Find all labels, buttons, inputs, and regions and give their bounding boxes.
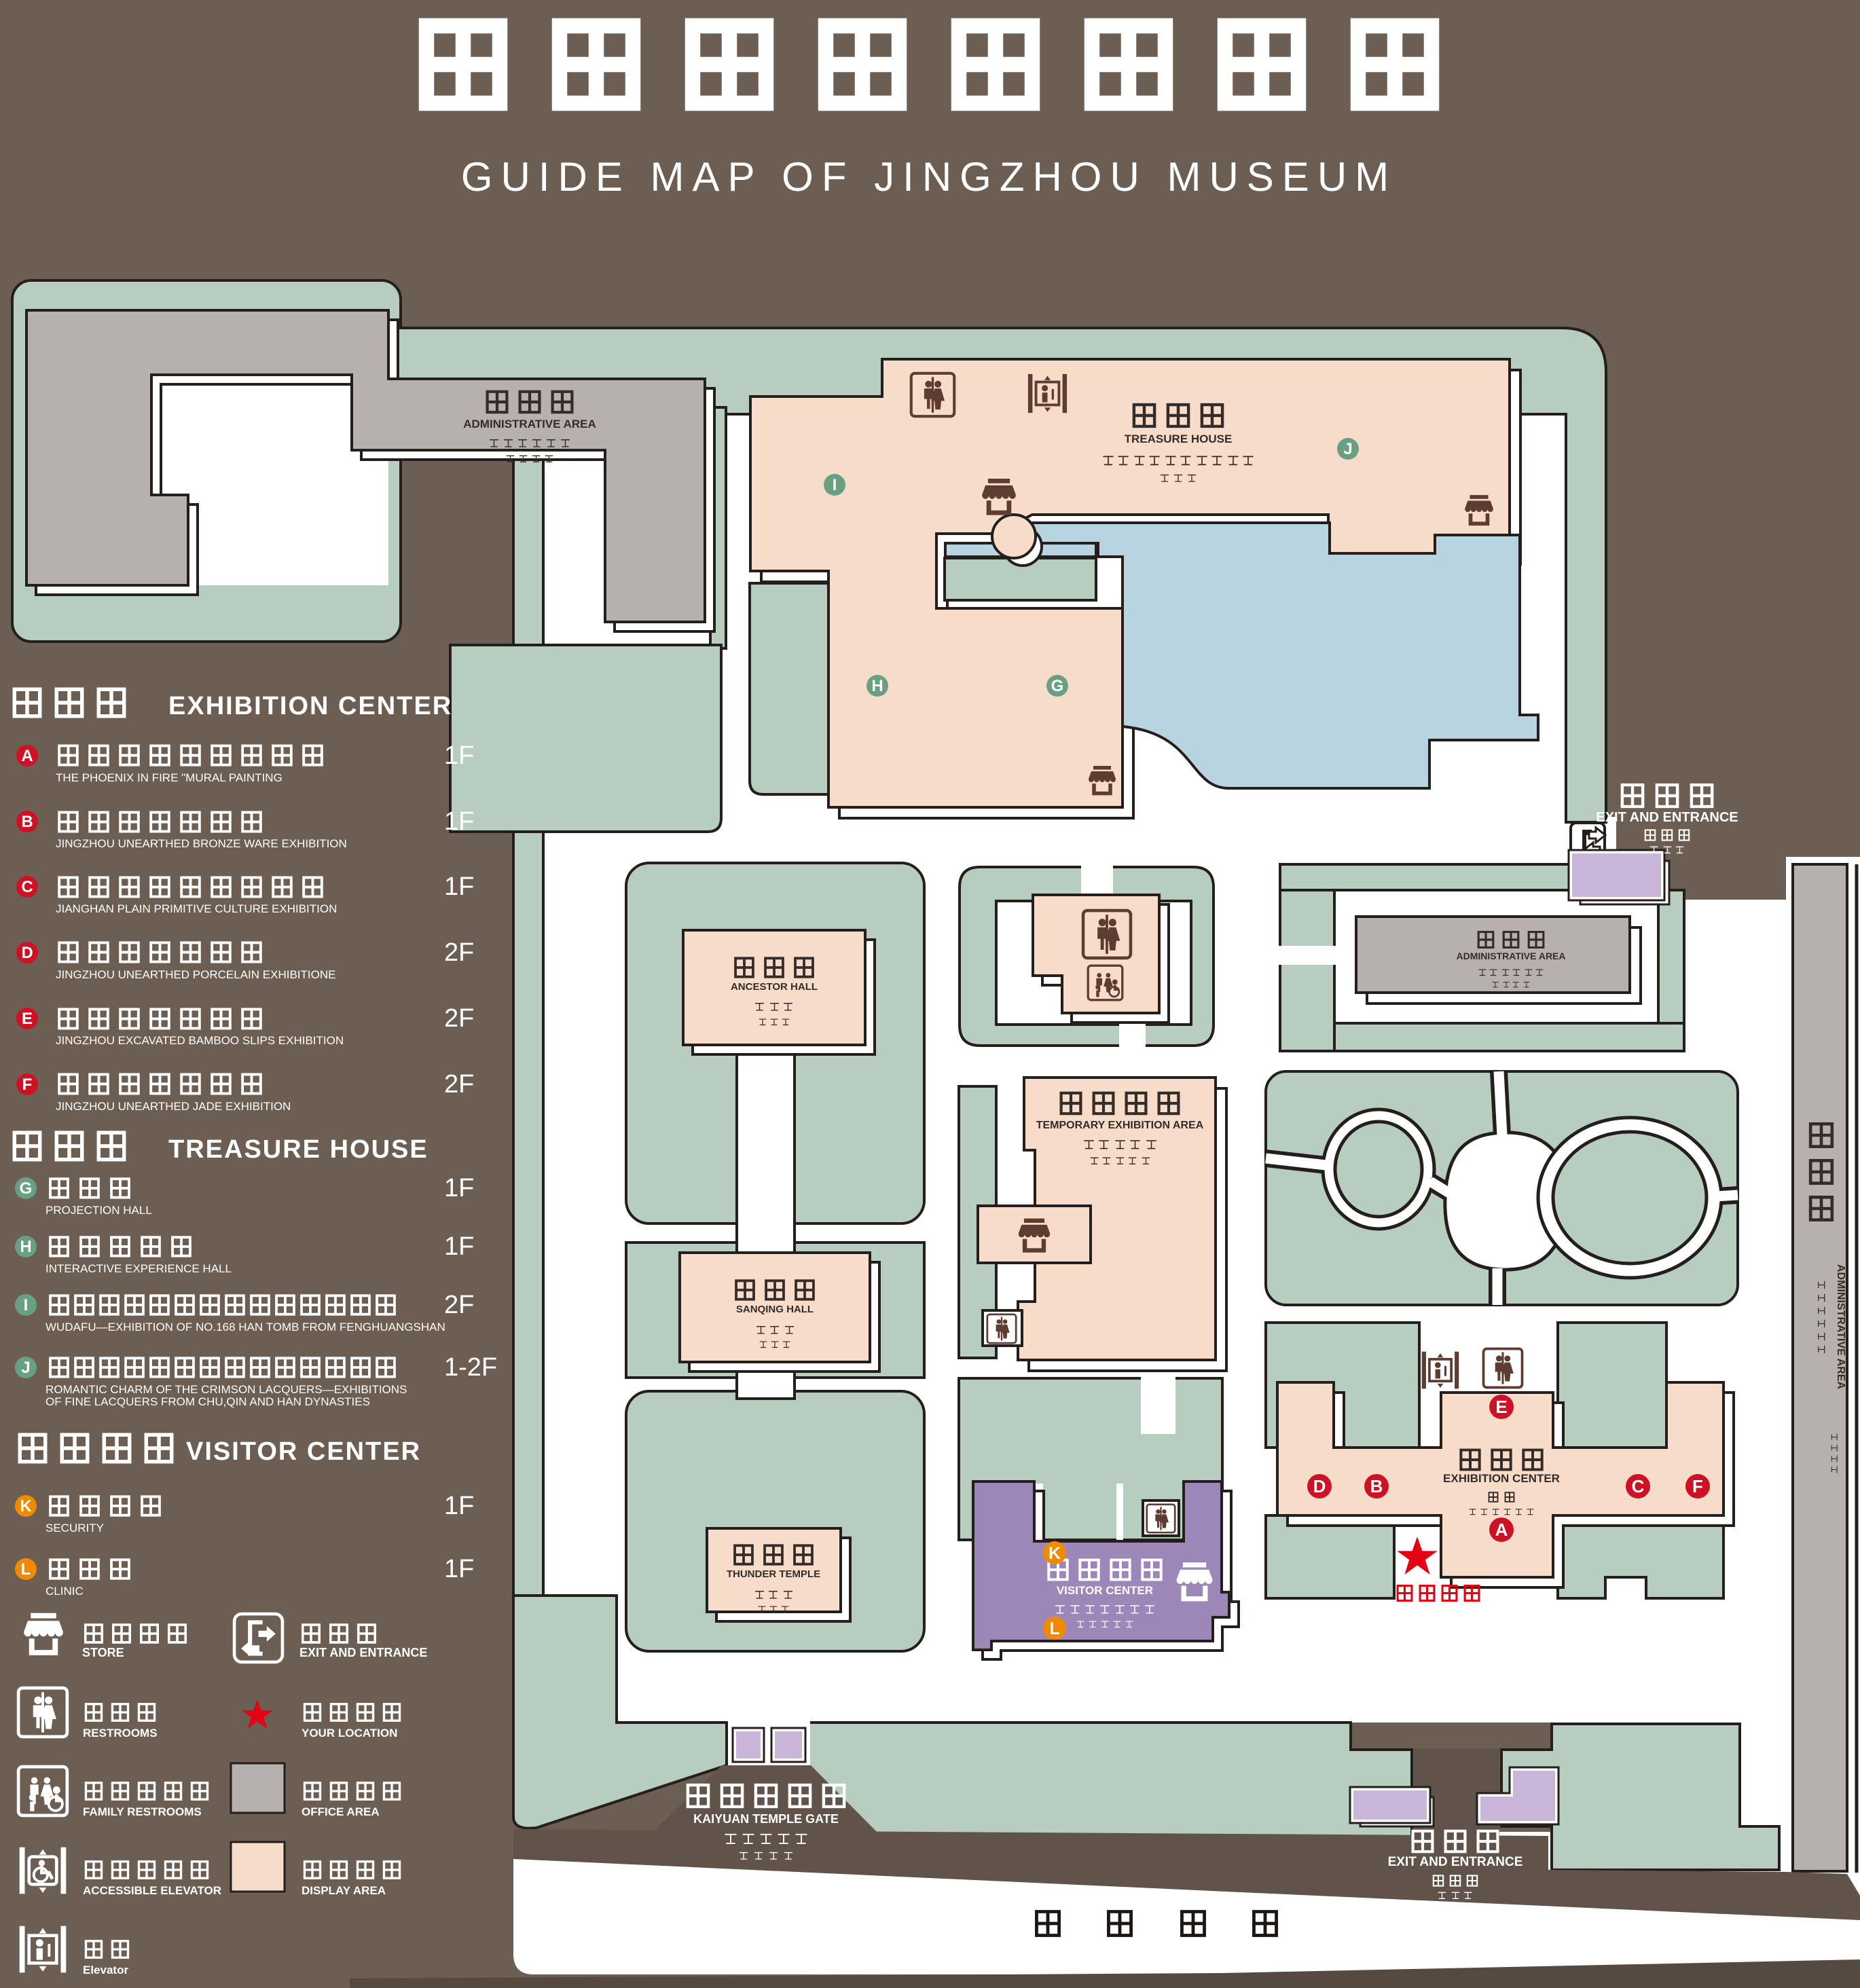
svg-text:GUIDE MAP OF JINGZHOU MUSEUM: GUIDE MAP OF JINGZHOU MUSEUM bbox=[461, 154, 1397, 200]
svg-text:RESTROOMS: RESTROOMS bbox=[83, 1727, 158, 1739]
svg-text:L: L bbox=[1049, 1619, 1059, 1638]
svg-text:VISITOR CENTER: VISITOR CENTER bbox=[1057, 1584, 1153, 1597]
svg-text:1F: 1F bbox=[444, 1492, 474, 1520]
svg-text:ADMINISTRATIVE AREA: ADMINISTRATIVE AREA bbox=[1835, 1264, 1846, 1389]
svg-text:SECURITY: SECURITY bbox=[45, 1522, 104, 1534]
svg-text:J: J bbox=[21, 1359, 30, 1377]
svg-text:STORE: STORE bbox=[82, 1646, 124, 1659]
svg-text:2F: 2F bbox=[444, 1004, 474, 1033]
svg-text:1-2F: 1-2F bbox=[444, 1353, 497, 1382]
svg-text:PROJECTION HALL: PROJECTION HALL bbox=[45, 1204, 152, 1217]
svg-text:ANCESTOR HALL: ANCESTOR HALL bbox=[731, 981, 818, 993]
svg-text:VISITOR CENTER: VISITOR CENTER bbox=[186, 1437, 421, 1466]
svg-text:TEMPORARY EXHIBITION AREA: TEMPORARY EXHIBITION AREA bbox=[1036, 1120, 1204, 1131]
svg-text:J: J bbox=[1343, 440, 1352, 458]
svg-text:B: B bbox=[21, 813, 33, 831]
svg-text:JINGZHOU EXCAVATED BAMBOO SLIP: JINGZHOU EXCAVATED BAMBOO SLIPS EXHIBITI… bbox=[56, 1034, 344, 1047]
svg-text:E: E bbox=[22, 1010, 33, 1028]
svg-text:Elevator: Elevator bbox=[83, 1964, 128, 1976]
svg-text:K: K bbox=[20, 1497, 32, 1515]
svg-text:I: I bbox=[833, 476, 837, 494]
svg-text:OFFICE AREA: OFFICE AREA bbox=[302, 1805, 380, 1818]
svg-text:I: I bbox=[24, 1296, 29, 1314]
svg-text:G: G bbox=[20, 1179, 33, 1198]
svg-text:ADMINISTRATIVE AREA: ADMINISTRATIVE AREA bbox=[1457, 951, 1566, 961]
svg-text:F: F bbox=[1692, 1476, 1703, 1496]
svg-text:B: B bbox=[1370, 1476, 1383, 1496]
svg-text:2F: 2F bbox=[444, 1070, 474, 1099]
svg-text:E: E bbox=[1495, 1397, 1507, 1417]
svg-text:ACCESSIBLE ELEVATOR: ACCESSIBLE ELEVATOR bbox=[83, 1884, 221, 1897]
svg-text:EXIT AND ENTRANCE: EXIT AND ENTRANCE bbox=[1388, 1855, 1523, 1869]
svg-text:KAIYUAN TEMPLE GATE: KAIYUAN TEMPLE GATE bbox=[693, 1812, 839, 1826]
svg-text:CLINIC: CLINIC bbox=[45, 1585, 84, 1598]
svg-text:THE PHOENIX IN FIRE "MURAL PAI: THE PHOENIX IN FIRE "MURAL PAINTING bbox=[56, 771, 282, 784]
svg-text:ADMINISTRATIVE AREA: ADMINISTRATIVE AREA bbox=[463, 418, 596, 430]
svg-text:EXHIBITION CENTER: EXHIBITION CENTER bbox=[168, 692, 452, 720]
svg-text:THUNDER TEMPLE: THUNDER TEMPLE bbox=[727, 1568, 820, 1580]
svg-text:1F: 1F bbox=[444, 1232, 474, 1261]
svg-text:G: G bbox=[1051, 677, 1064, 695]
svg-text:D: D bbox=[1313, 1476, 1326, 1496]
svg-text:JINGZHOU UNEARTHED PORCELAIN E: JINGZHOU UNEARTHED PORCELAIN EXHIBITIONE bbox=[56, 968, 335, 981]
svg-text:L: L bbox=[21, 1560, 31, 1579]
svg-text:FAMILY RESTROOMS: FAMILY RESTROOMS bbox=[83, 1805, 202, 1818]
svg-text:EXIT AND ENTRANCE: EXIT AND ENTRANCE bbox=[299, 1646, 427, 1659]
svg-text:1F: 1F bbox=[444, 1555, 474, 1583]
svg-text:H: H bbox=[20, 1238, 31, 1256]
svg-text:TREASURE HOUSE: TREASURE HOUSE bbox=[1125, 432, 1233, 445]
svg-text:EXIT AND ENTRANCE: EXIT AND ENTRANCE bbox=[1596, 810, 1738, 825]
svg-text:INTERACTIVE EXPERIENCE HALL: INTERACTIVE EXPERIENCE HALL bbox=[45, 1262, 232, 1275]
svg-text:2F: 2F bbox=[444, 1291, 474, 1319]
svg-text:2F: 2F bbox=[444, 938, 474, 967]
svg-text:D: D bbox=[21, 944, 33, 962]
svg-text:JINGZHOU UNEARTHED BRONZE WARE: JINGZHOU UNEARTHED BRONZE WARE EXHIBITIO… bbox=[56, 837, 347, 850]
svg-text:DISPLAY AREA: DISPLAY AREA bbox=[302, 1884, 386, 1897]
svg-text:WUDAFU—EXHIBITION OF NO.168 HA: WUDAFU—EXHIBITION OF NO.168 HAN TOMB FRO… bbox=[45, 1321, 445, 1333]
svg-text:TREASURE HOUSE: TREASURE HOUSE bbox=[168, 1135, 428, 1164]
svg-text:1F: 1F bbox=[444, 807, 474, 836]
svg-text:A: A bbox=[1495, 1520, 1508, 1540]
svg-text:1F: 1F bbox=[444, 872, 474, 901]
svg-text:JINGZHOU UNEARTHED JADE EXHIBI: JINGZHOU UNEARTHED JADE EXHIBITION bbox=[56, 1100, 291, 1113]
svg-text:JIANGHAN PLAIN PRIMITIVE CULTU: JIANGHAN PLAIN PRIMITIVE CULTURE EXHIBIT… bbox=[56, 902, 337, 915]
svg-text:SANQING HALL: SANQING HALL bbox=[736, 1304, 814, 1315]
svg-text:1F: 1F bbox=[444, 741, 474, 770]
svg-text:F: F bbox=[22, 1075, 33, 1094]
svg-text:YOUR LOCATION: YOUR LOCATION bbox=[302, 1727, 397, 1739]
svg-text:1F: 1F bbox=[444, 1174, 474, 1202]
svg-text:OF FINE LACQUERS FROM CHU,QIN: OF FINE LACQUERS FROM CHU,QIN AND HAN DY… bbox=[45, 1395, 370, 1408]
svg-text:A: A bbox=[21, 747, 33, 765]
svg-text:H: H bbox=[871, 677, 883, 695]
svg-text:ROMANTIC CHARM OF THE CRIMSON: ROMANTIC CHARM OF THE CRIMSON LACQUERS—E… bbox=[45, 1383, 407, 1396]
svg-text:EXHIBITION CENTER: EXHIBITION CENTER bbox=[1443, 1472, 1560, 1485]
svg-text:C: C bbox=[1632, 1476, 1645, 1496]
svg-text:C: C bbox=[21, 878, 33, 896]
svg-text:K: K bbox=[1048, 1544, 1061, 1563]
